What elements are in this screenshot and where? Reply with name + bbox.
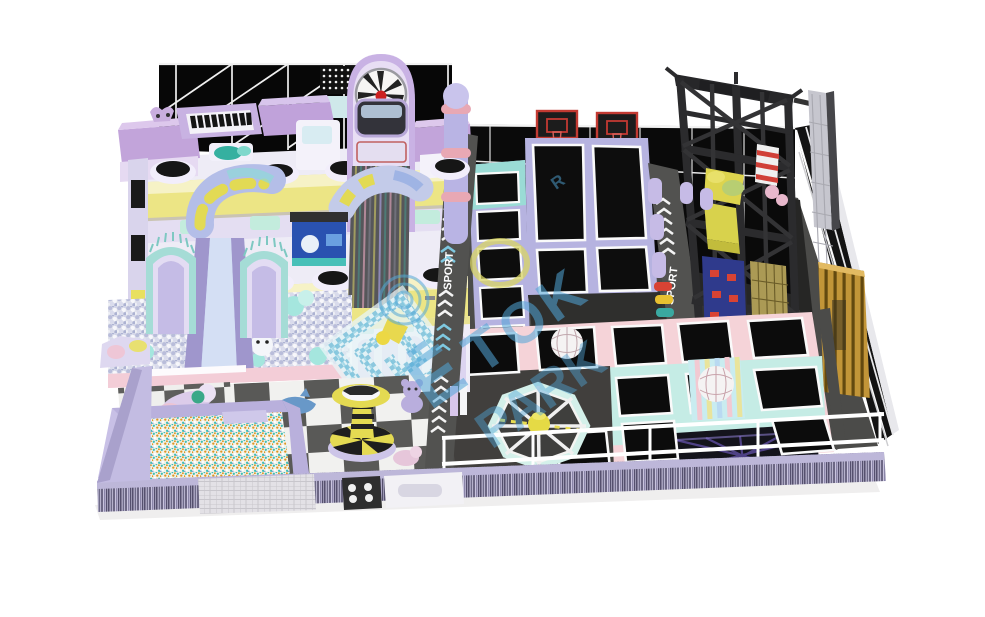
svg-text:SPORT: SPORT — [442, 251, 456, 290]
